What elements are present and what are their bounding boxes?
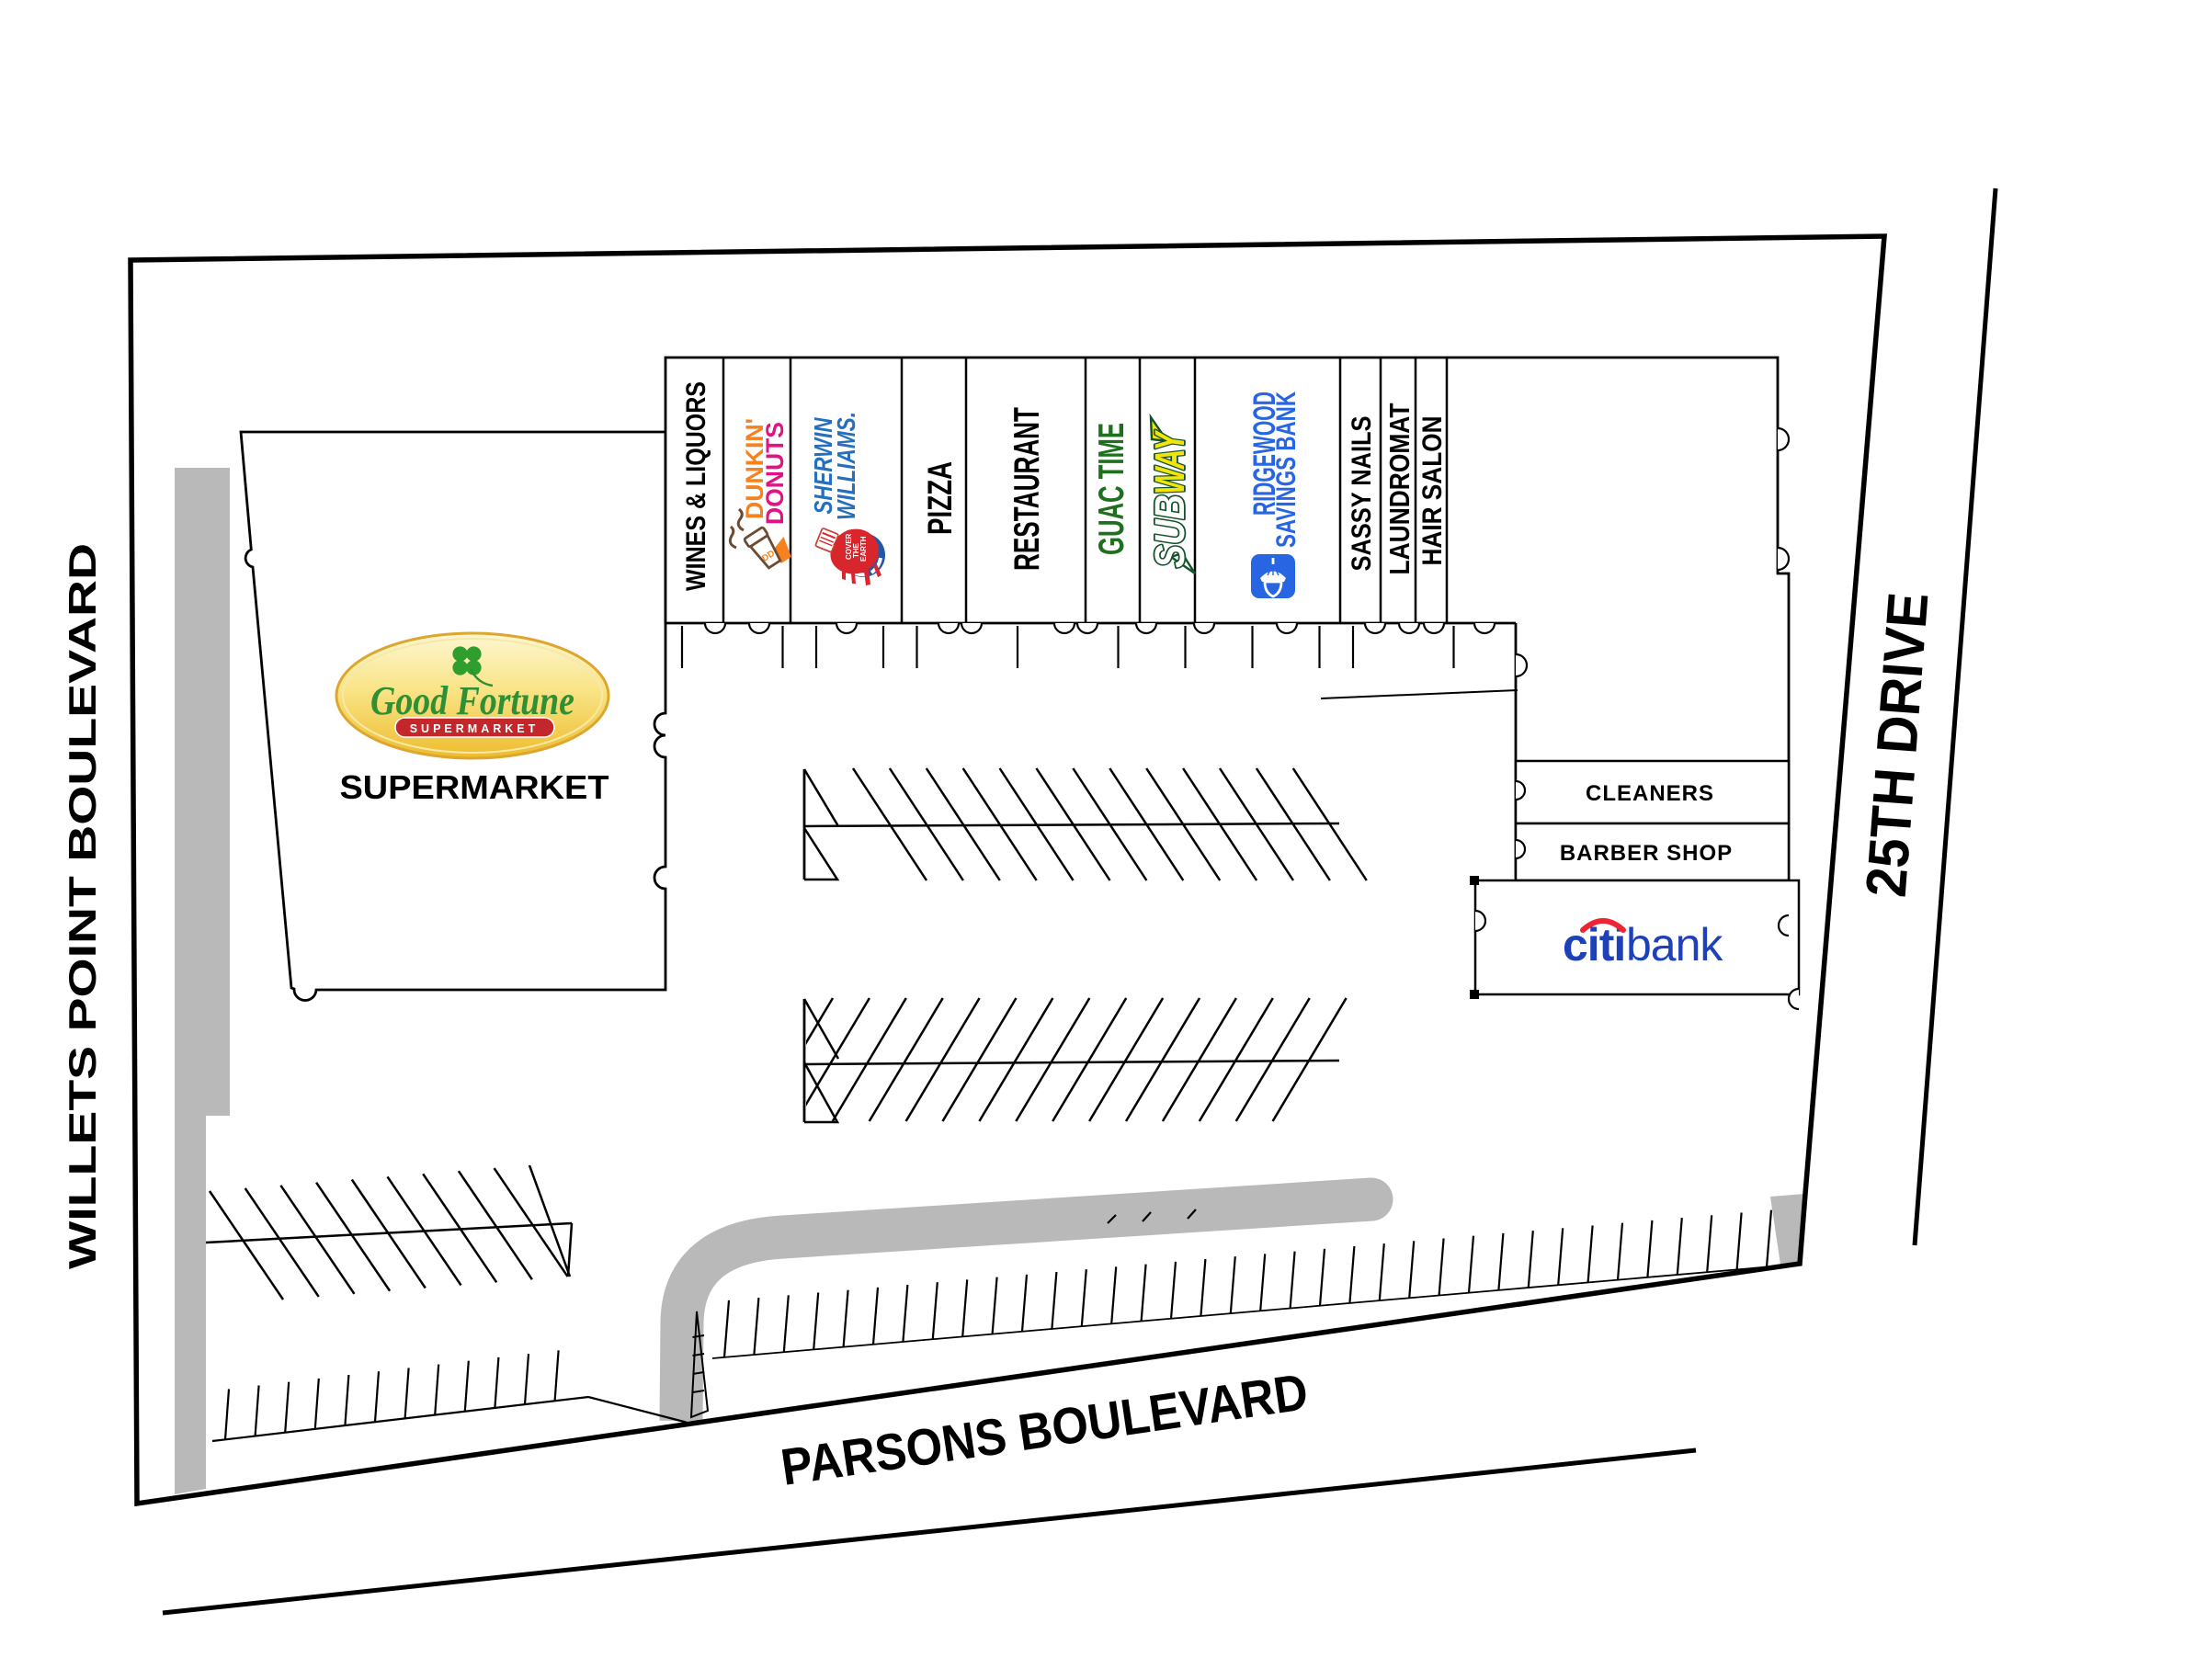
svg-text:DONUTS: DONUTS — [761, 422, 789, 525]
svg-text:CLEANERS: CLEANERS — [1586, 781, 1714, 806]
svg-text:LAUNDROMAT: LAUNDROMAT — [1383, 403, 1416, 574]
svg-text:RESTAURANT: RESTAURANT — [1007, 407, 1047, 571]
svg-text:WINES & LIQUORS: WINES & LIQUORS — [681, 381, 711, 591]
svg-text:bank: bank — [1626, 919, 1723, 971]
svg-text:Good Fortune: Good Fortune — [370, 678, 574, 723]
svg-text:BARBER SHOP: BARBER SHOP — [1560, 841, 1733, 866]
svg-text:SUPERMARKET: SUPERMARKET — [410, 722, 540, 735]
svg-text:SAVINGS BANK: SAVINGS BANK — [1271, 392, 1302, 548]
svg-text:WILLETS POINT BOULEVARD: WILLETS POINT BOULEVARD — [61, 543, 104, 1269]
svg-text:SUPERMARKET: SUPERMARKET — [340, 768, 609, 806]
svg-text:SASSY NAILS: SASSY NAILS — [1347, 416, 1377, 572]
svg-text:SUB: SUB — [1146, 494, 1193, 568]
svg-text:EARTH: EARTH — [859, 536, 868, 562]
svg-text:GUAC TIME: GUAC TIME — [1092, 423, 1132, 555]
svg-text:PIZZA: PIZZA — [921, 461, 959, 535]
svg-text:WAY: WAY — [1146, 429, 1193, 494]
svg-text:HAIR SALON: HAIR SALON — [1417, 416, 1448, 566]
svg-text:WILLIAMS.: WILLIAMS. — [832, 412, 860, 520]
